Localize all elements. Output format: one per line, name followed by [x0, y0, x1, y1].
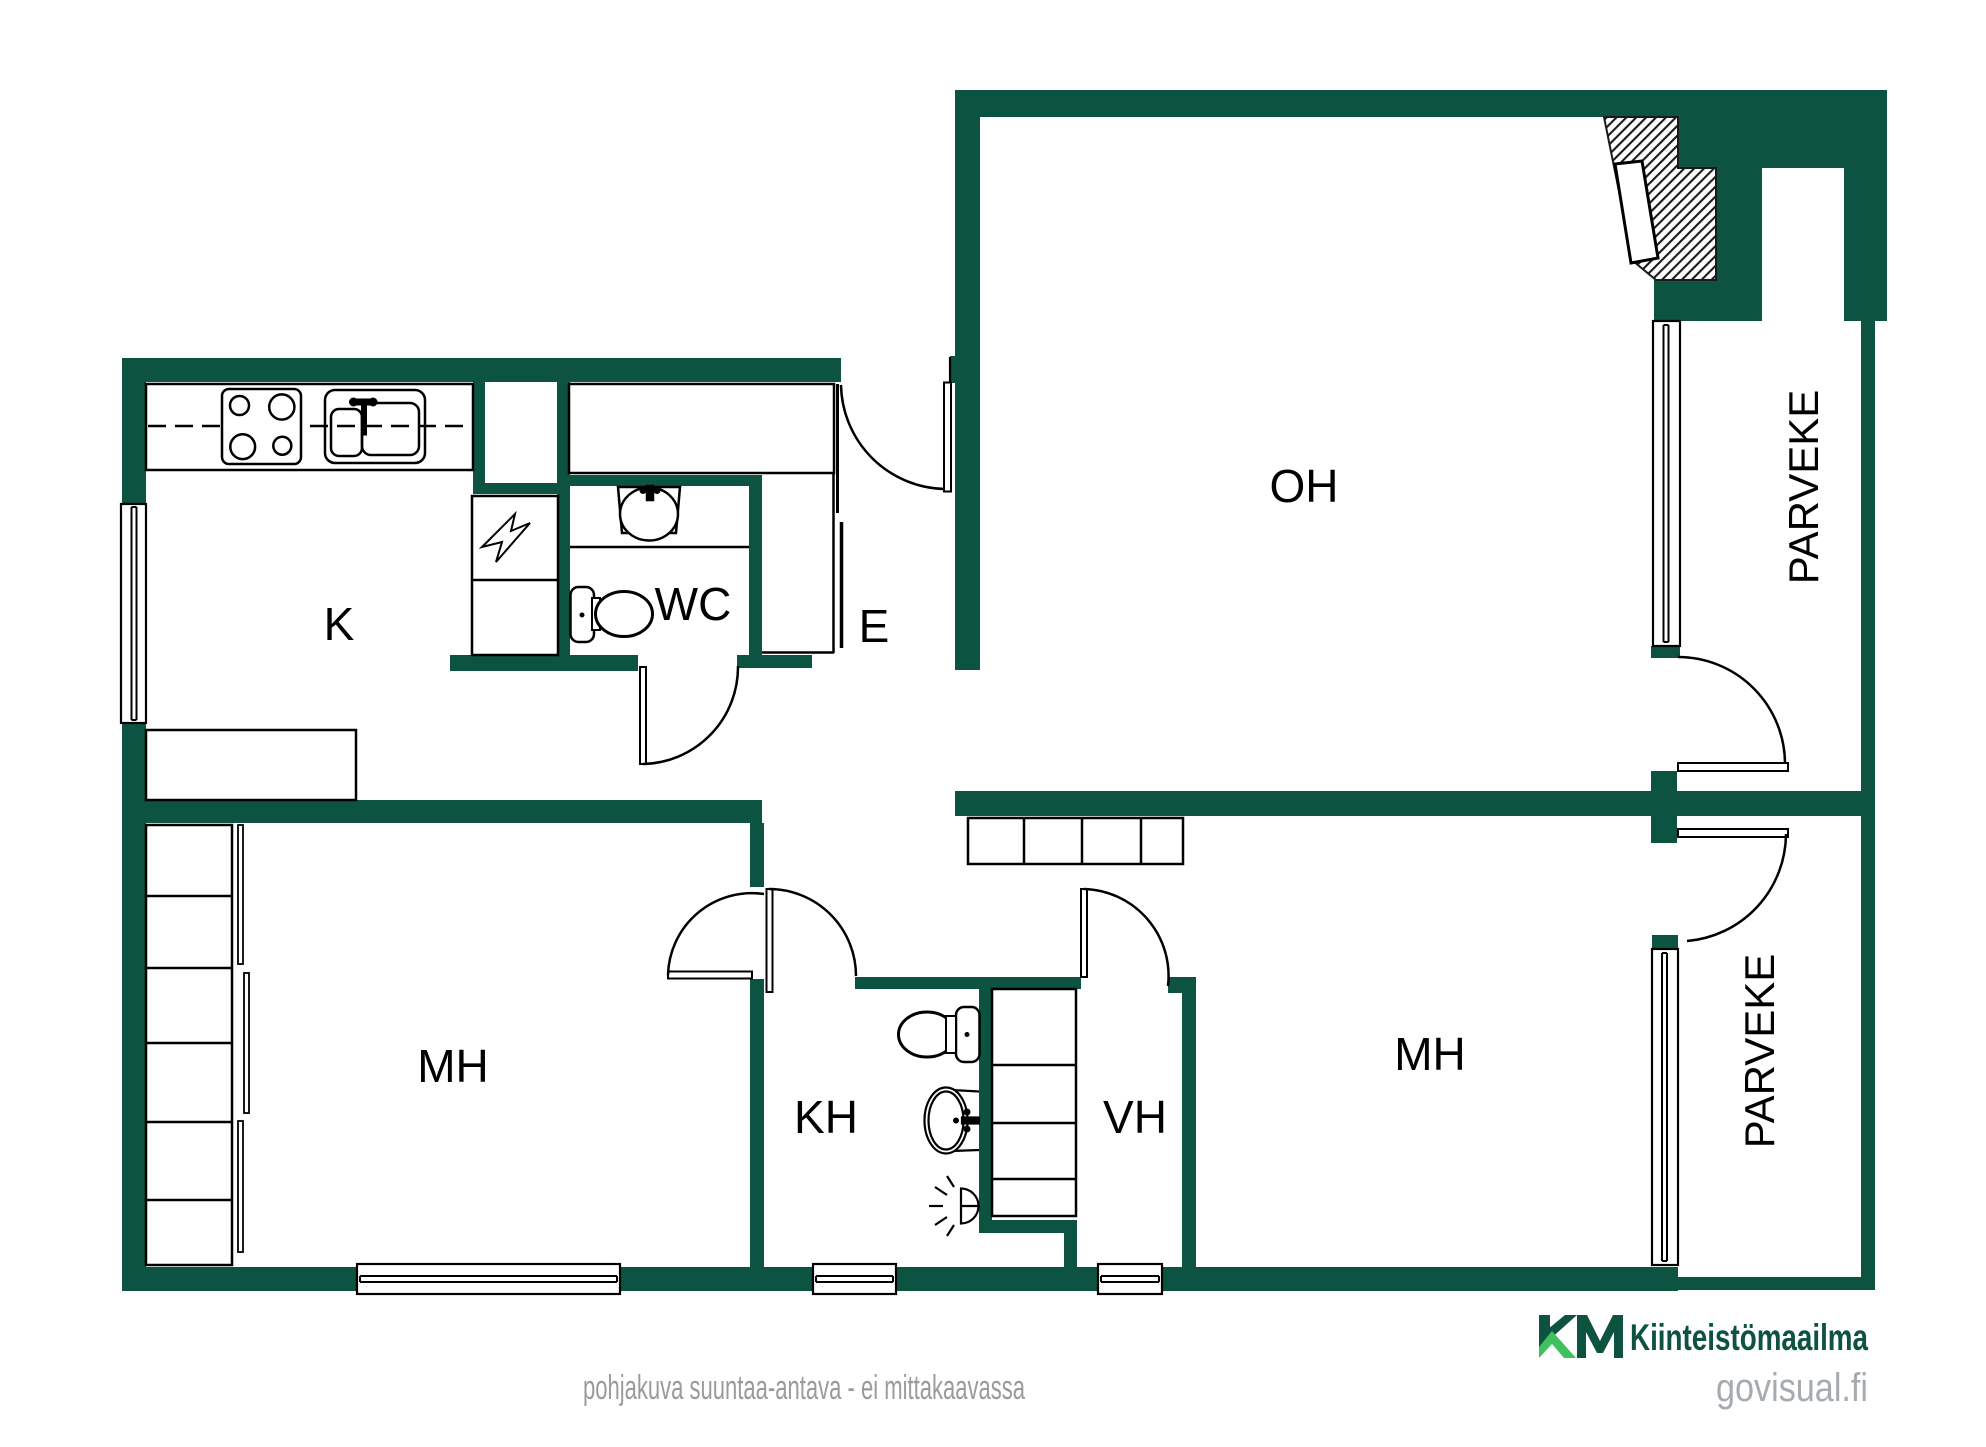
svg-text:govisual.fi: govisual.fi	[1716, 1366, 1868, 1410]
svg-text:KH: KH	[794, 1091, 858, 1143]
svg-text:E: E	[859, 600, 890, 652]
svg-text:Kiinteistömaailma: Kiinteistömaailma	[1630, 1317, 1868, 1358]
svg-text:MH: MH	[417, 1040, 489, 1092]
svg-text:pohjakuva suuntaa-antava - ei: pohjakuva suuntaa-antava - ei mittakaava…	[583, 1369, 1025, 1407]
svg-text:K: K	[324, 598, 355, 650]
svg-text:PARVEKE: PARVEKE	[1780, 390, 1827, 585]
svg-text:OH: OH	[1270, 460, 1339, 512]
svg-text:MH: MH	[1394, 1028, 1466, 1080]
svg-text:VH: VH	[1103, 1091, 1167, 1143]
svg-text:WC: WC	[655, 578, 732, 630]
svg-text:PARVEKE: PARVEKE	[1736, 954, 1783, 1149]
